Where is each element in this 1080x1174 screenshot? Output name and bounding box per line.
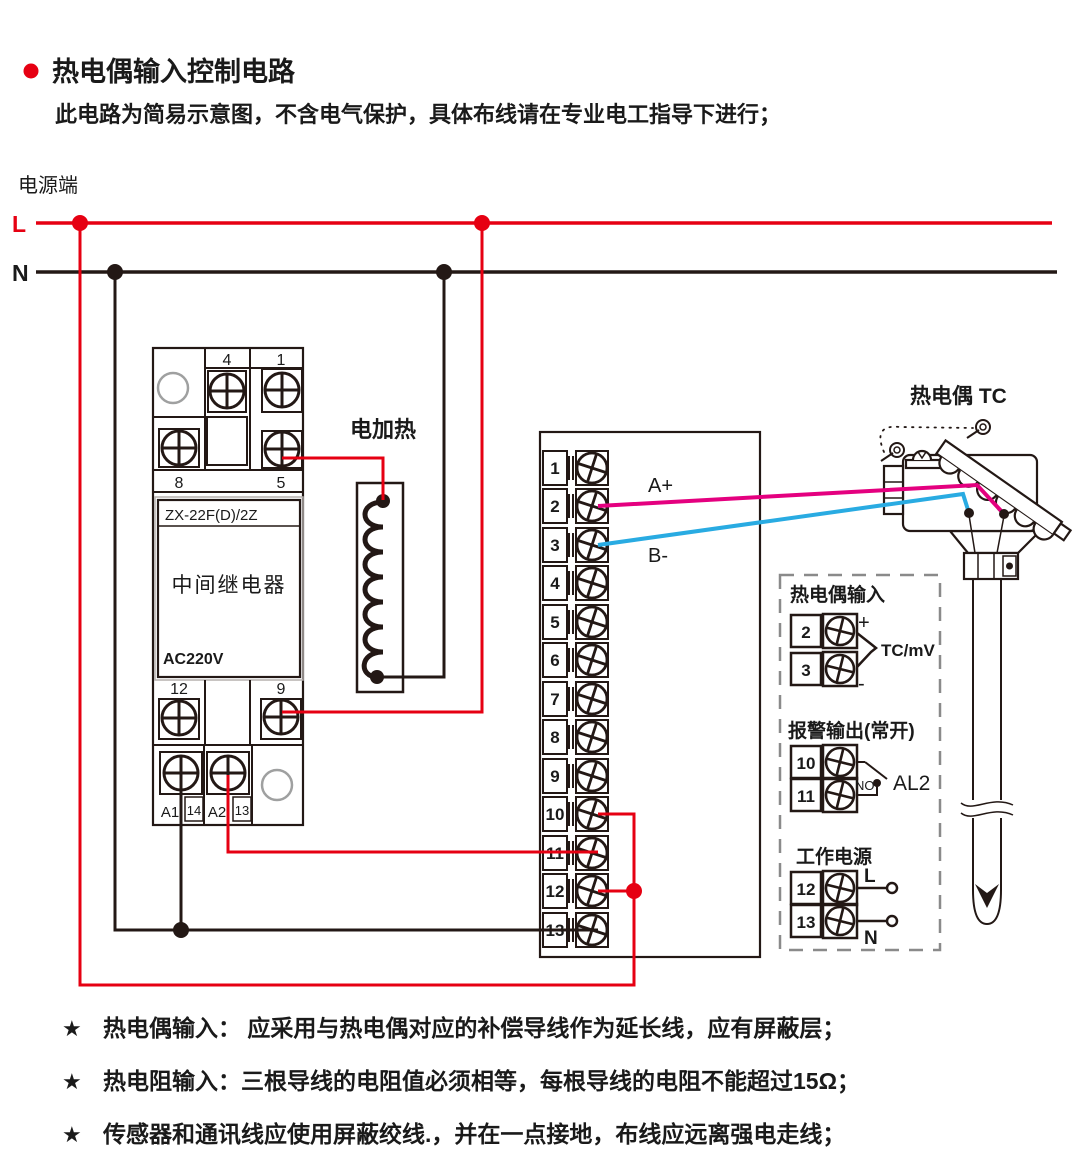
footnotes: ★ 热电偶输入： 应采用与热电偶对应的补偿导线作为延长线，应有屏蔽层； ★ 热电…: [62, 1015, 860, 1147]
io-detail-panel: 热电偶输入 2 3 + - TC/mV 报警输出(常开) 10 11 NO AL…: [780, 575, 940, 950]
terminal-number: 9: [550, 767, 559, 786]
thermocouple-label: 热电偶 TC: [910, 384, 1007, 408]
circuit-page: 热电偶输入控制电路 此电路为简易示意图，不含电气保护，具体布线请在专业电工指导下…: [0, 0, 1080, 1174]
relay-screw-9-icon: [264, 700, 298, 734]
power-title: 工作电源: [796, 845, 872, 868]
terminal-number: 2: [550, 497, 559, 516]
power-source-label: 电源端: [18, 174, 78, 197]
relay-screw-12-icon: [162, 701, 196, 735]
power-supply-section: 工作电源 12 13 L N: [791, 845, 897, 949]
relay-terminal-a2: A2: [208, 804, 226, 821]
relay-terminal-a1: A1: [161, 804, 179, 821]
panel-terminal-12: 12: [797, 880, 816, 899]
signal-a-plus-label: A+: [648, 475, 673, 497]
terminal-number: 3: [550, 536, 559, 555]
alarm-title: 报警输出(常开): [788, 719, 915, 742]
terminal-number: 6: [550, 651, 559, 670]
note-text-1: 热电偶输入： 应采用与热电偶对应的补偿导线作为延长线，应有屏蔽层；: [103, 1015, 845, 1041]
relay-screw-4-icon: [210, 374, 244, 408]
note-text-3: 传感器和通讯线应使用屏蔽绞线.，并在一点接地，布线应远离强电走线；: [102, 1121, 845, 1147]
power-l-label: L: [864, 866, 876, 887]
relay-name: 中间继电器: [172, 574, 287, 597]
relay-voltage: AC220V: [163, 651, 224, 668]
note-star: ★: [62, 1016, 82, 1041]
probe-tip-arrow-icon: [975, 884, 999, 908]
circuit-diagram: 热电偶输入控制电路 此电路为简易示意图，不含电气保护，具体布线请在专业电工指导下…: [0, 0, 1080, 1174]
tc-plus-sign: +: [858, 612, 870, 634]
heater-wire-to-neutral: [377, 272, 444, 677]
panel-terminal-11: 11: [797, 787, 815, 806]
alarm-name-label: AL2: [893, 772, 930, 795]
alarm-no-label: NO: [855, 778, 875, 793]
relay-terminal-14: 14: [187, 803, 201, 818]
relay-terminal-12: 12: [170, 681, 188, 698]
note-star: ★: [62, 1122, 82, 1147]
tc-input-section: 热电偶输入 2 3 + - TC/mV: [790, 583, 936, 695]
page-subtitle: 此电路为简易示意图，不含电气保护，具体布线请在专业电工指导下进行；: [55, 102, 781, 127]
page-title: 热电偶输入控制电路: [52, 56, 296, 87]
relay-terminal-9: 9: [277, 681, 286, 698]
relay-screw-5-icon: [265, 432, 299, 466]
relay-terminal-5: 5: [277, 475, 286, 492]
alarm-switch-arm: [865, 762, 887, 779]
panel-terminal-13: 13: [797, 913, 816, 932]
alarm-output-section: 报警输出(常开) 10 11 NO AL2: [788, 719, 930, 812]
terminal-number: 1: [550, 459, 559, 478]
tc-signal-label: TC/mV: [881, 641, 936, 660]
tc-input-title: 热电偶输入: [790, 583, 885, 606]
terminal-number: 7: [550, 690, 559, 709]
relay-terminal-4: 4: [223, 352, 232, 369]
panel-terminal-3: 3: [801, 661, 810, 680]
terminal-number: 4: [550, 574, 560, 593]
relay-unit: 4 1 8 5 ZX-22F(D)/2Z 中间继电器 AC220V 12 9 A…: [153, 348, 303, 825]
note-text-2: 热电阻输入：三根导线的电阻值必须相等，每根导线的电阻不能超过15Ω；: [103, 1068, 860, 1094]
terminal-number: 10: [546, 805, 565, 824]
controller-terminal-block: 1 2 3 4 5 6 7 8 9 10 11 12 13: [540, 432, 760, 957]
relay-terminal-13: 13: [235, 803, 249, 818]
relay-screw-1-icon: [265, 373, 299, 407]
panel-terminal-2: 2: [801, 623, 810, 642]
title-bullet-icon: [24, 64, 39, 79]
cap-screw-icon: [967, 420, 990, 438]
rail-l-label: L: [12, 211, 26, 237]
relay-model: ZX-22F(D)/2Z: [165, 507, 258, 524]
terminal-number: 12: [546, 882, 565, 901]
signal-b-minus-label: B-: [648, 545, 668, 567]
heater-label: 电加热: [350, 417, 416, 442]
relay-terminal-8: 8: [175, 475, 184, 492]
terminal-number: 5: [550, 613, 559, 632]
power-n-label: N: [864, 928, 878, 949]
tc-minus-sign: -: [858, 673, 865, 695]
panel-terminal-10: 10: [797, 754, 816, 773]
relay-terminal-1: 1: [277, 352, 286, 369]
relay-screw-8-icon: [162, 431, 196, 465]
rail-n-label: N: [12, 260, 29, 286]
terminal-number: 8: [550, 728, 559, 747]
note-star: ★: [62, 1069, 82, 1094]
